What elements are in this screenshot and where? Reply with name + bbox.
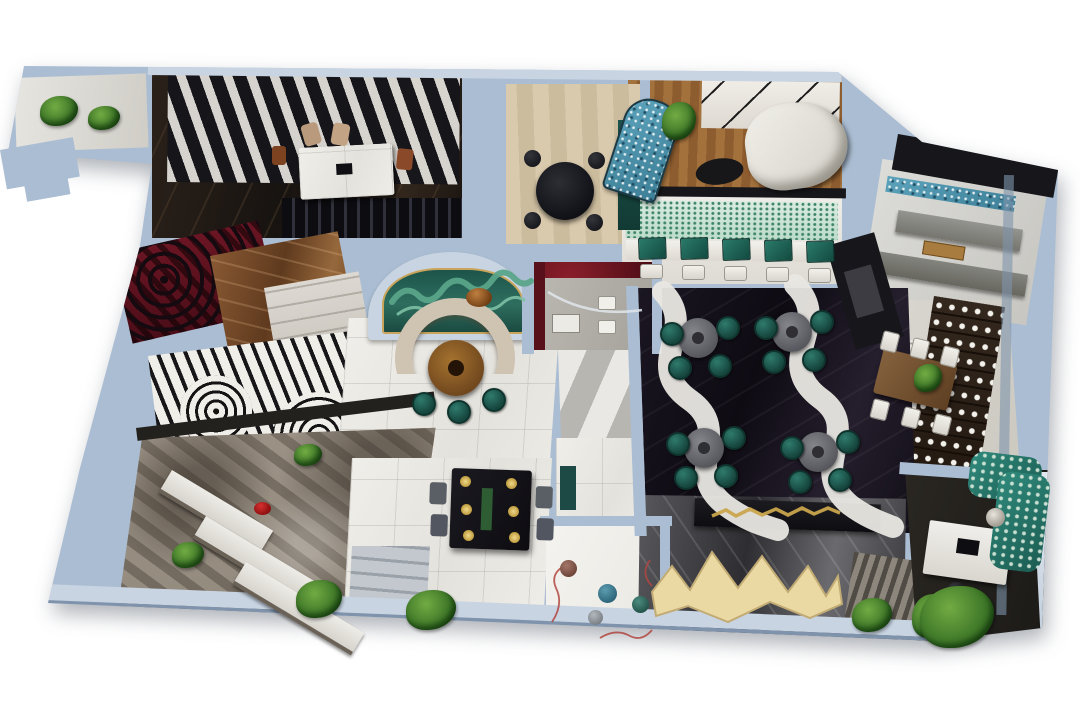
booth-chair-3 [724,266,747,281]
dining-chair-1 [524,150,541,167]
tea-stool-1 [412,392,436,416]
dining-side-chair-1 [429,482,447,505]
tea-stool-2 [447,400,471,424]
hall-t3-chair-1 [666,432,690,456]
booth-chair-2 [682,265,705,280]
hall-t3-chair-2 [722,426,746,450]
hall-t3-chair-4 [714,464,738,488]
tea-table-center [448,360,464,376]
entry-gallery-wing-floor [14,73,149,152]
gold-place-setting-1 [460,476,471,487]
dining-side-chair-2 [430,514,448,537]
booth-chair-4 [766,267,789,282]
hall-t1-chair-2 [716,316,740,340]
pouf-gray [588,610,603,625]
gold-place-setting-2 [506,478,517,489]
island-laptop [336,163,353,175]
hall-t4-chair-3 [788,470,812,494]
red-bowl [254,502,271,515]
dining-chair-4 [586,214,603,231]
gold-place-setting-3 [461,504,472,515]
booth-table-1 [638,237,667,260]
dining-chair-2 [588,152,605,169]
map-mural-wall [626,200,838,240]
office-monitor [956,538,980,556]
hall-t1-chair-1 [660,322,684,346]
hall-t2-chair-2 [810,310,834,334]
tea-stool-3 [482,388,506,412]
booth-table-5 [806,240,835,263]
round-black-table [536,162,594,220]
gold-place-setting-4 [508,506,519,517]
hall-t2-chair-3 [762,350,786,374]
hall-t1-chair-3 [668,356,692,380]
hall-t3-chair-3 [674,466,698,490]
dining-side-chair-3 [535,486,553,509]
booth-table-2 [680,237,709,260]
booth-table-3 [722,238,751,261]
restroom-red-wall [532,262,654,278]
hall-t4-chair-1 [780,436,804,460]
dining-chair-3 [524,212,541,229]
hall-table-2 [772,312,812,352]
south-corridor-cabinet [560,466,576,510]
hall-t4-chair-4 [828,468,852,492]
restroom-toilet-2 [598,320,616,334]
hall-table-3 [684,428,724,468]
table-centerpiece [481,488,493,530]
plaza-restroom-wall [522,254,534,354]
sofa-round-tray [986,508,1005,527]
island-chair-rust-left [272,146,286,165]
hall-t1-chair-4 [708,354,732,378]
hall-table-1 [678,318,718,358]
dining-side-chair-4 [536,518,554,541]
copper-pot [466,288,492,307]
restroom-sink [552,314,580,333]
booth-chair-1 [640,264,663,279]
restroom-toilet-1 [598,296,616,310]
hall-t4-chair-2 [836,430,860,454]
gold-place-setting-5 [463,530,474,541]
island-chair-rust-right [396,148,414,171]
booth-table-4 [764,239,793,262]
floorplan-scene [0,0,1080,720]
hall-t2-chair-4 [802,348,826,372]
hall-table-4 [798,432,838,472]
gold-place-setting-6 [509,532,520,543]
pouf-blue [598,584,617,603]
pouf-brown [560,560,577,577]
hall-t2-chair-1 [754,316,778,340]
hall-divider-inset [844,264,884,318]
floral-top-wall [540,516,672,526]
booth-chair-5 [808,268,831,283]
pouf-teal [632,596,649,613]
